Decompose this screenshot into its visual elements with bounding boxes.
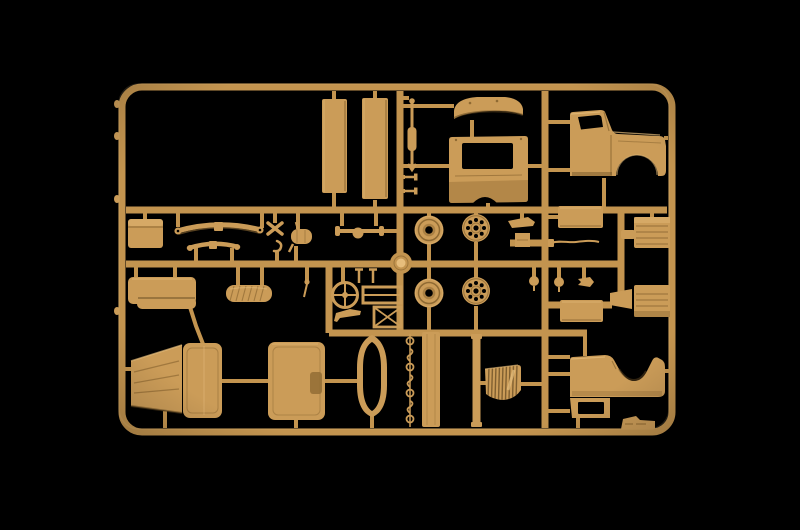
sprue-photo: Photograph of a tan injection-molded pla… xyxy=(0,0,800,530)
vignette-overlay xyxy=(0,0,800,530)
photo-stage: Photograph of a tan injection-molded pla… xyxy=(0,0,800,530)
